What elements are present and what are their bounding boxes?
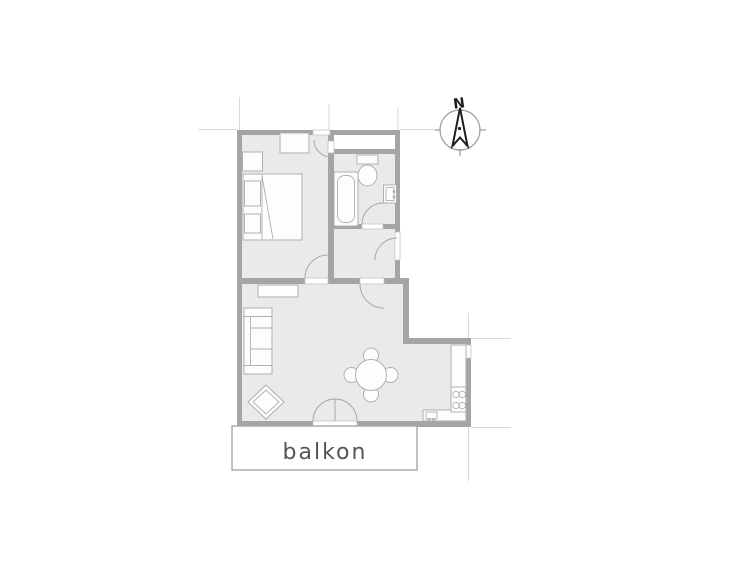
floor-plan: balkon N <box>0 0 750 562</box>
kitchen-window <box>466 345 471 358</box>
bedroom-door-opening <box>305 278 328 284</box>
compass-north-label: N <box>452 95 466 112</box>
compass: N <box>435 95 486 156</box>
wardrobe <box>280 133 309 153</box>
wall-bathroom-top <box>328 149 395 154</box>
dresser <box>243 152 263 171</box>
balcony-label: balkon <box>283 440 368 465</box>
entrance-door-opening <box>395 232 400 260</box>
wall-right-upper <box>395 130 400 284</box>
toilet-bowl <box>358 165 377 186</box>
balcony: balkon <box>232 426 417 470</box>
floor-plan-page: balkon N <box>0 0 750 562</box>
bathroom-door-opening <box>362 224 383 229</box>
hall-door-opening <box>360 278 384 284</box>
hall-floor <box>331 227 397 281</box>
toilet-tank <box>357 155 378 164</box>
compass-center-dot <box>458 127 461 130</box>
dining-table <box>356 360 387 391</box>
window-top-wall <box>313 130 330 135</box>
wall-step-vertical <box>403 278 409 343</box>
pillow <box>245 181 261 206</box>
closet-door-opening <box>328 141 334 153</box>
pillow <box>245 214 261 233</box>
sideboard <box>258 285 298 297</box>
wall-kitchen-top <box>403 338 471 344</box>
sofa <box>244 308 272 374</box>
